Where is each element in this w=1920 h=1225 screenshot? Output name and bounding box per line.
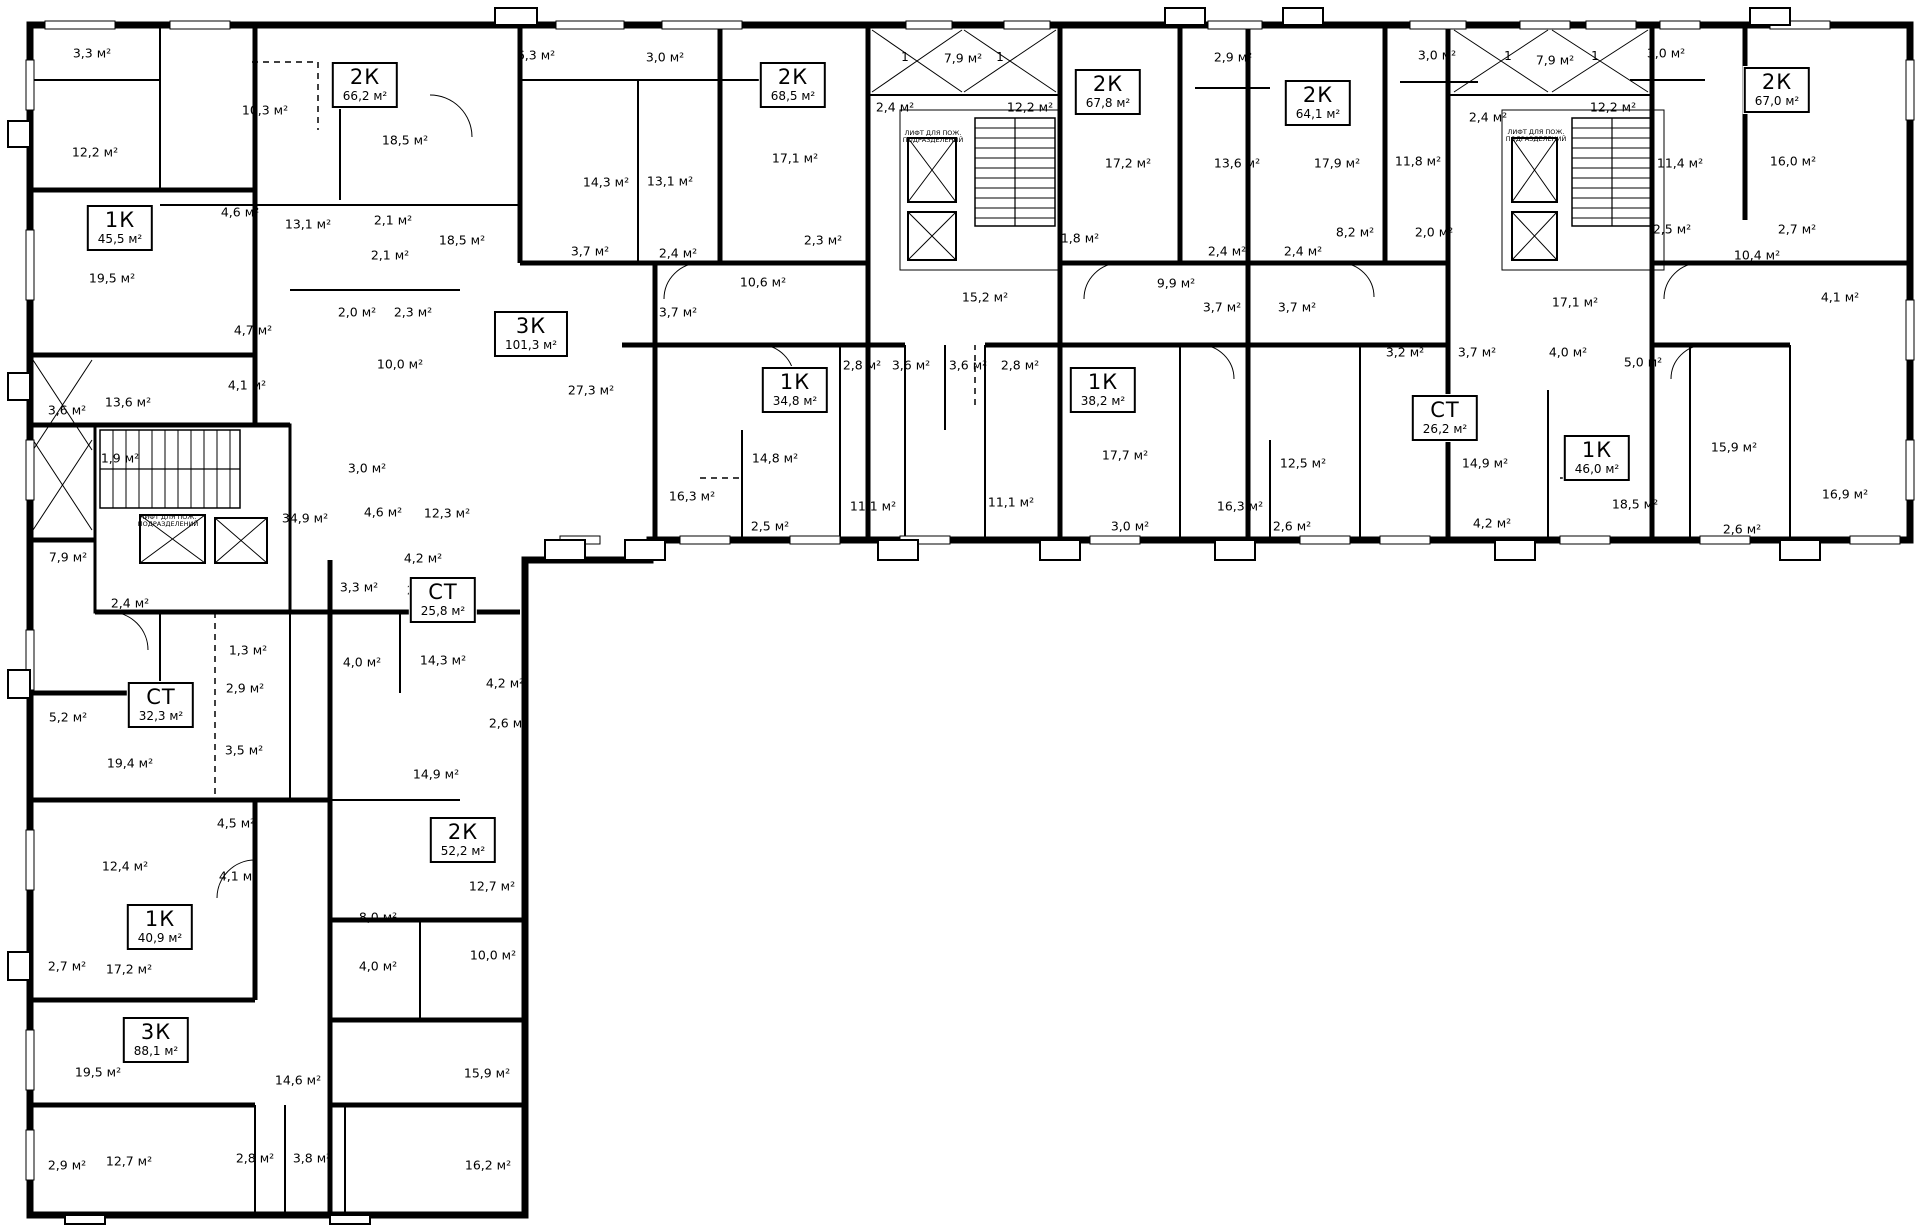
room-area-label: 14,8 м²: [752, 451, 798, 466]
room-area-label: 13,6 м²: [105, 395, 151, 410]
room-area-label: 2,4 м²: [111, 596, 149, 611]
room-area-label: 13,1 м²: [647, 174, 693, 189]
room-area-label: 4,6 м²: [364, 505, 402, 520]
room-area-label: 3,7 м²: [1458, 345, 1496, 360]
room-area-label: 10,6 м²: [740, 275, 786, 290]
room-area-label: 15,2 м²: [962, 290, 1008, 305]
apartment-type-badge: 2К66,2 м²: [332, 62, 398, 108]
apartment-type: 2К: [1086, 73, 1130, 96]
room-area-label: 4,0 м²: [1549, 345, 1587, 360]
room-area-label: 4,7 м²: [234, 323, 272, 338]
room-area-label: 16,3 м²: [1217, 499, 1263, 514]
room-area-label: 4,2 м²: [404, 551, 442, 566]
apartment-type: 2К: [343, 66, 387, 89]
room-area-label: 2,8 м²: [843, 358, 881, 373]
room-area-label: 4,0 м²: [343, 655, 381, 670]
room-area-label: 2,4 м²: [1284, 244, 1322, 259]
room-area-label: 2,4 м²: [659, 246, 697, 261]
room-area-label: 2,4 м²: [876, 100, 914, 115]
room-area-label: 27,3 м²: [568, 383, 614, 398]
apartment-type: СТ: [421, 581, 465, 604]
room-area-label: 10,0 м²: [377, 357, 423, 372]
room-area-label: 4,5 м²: [217, 816, 255, 831]
room-area-label: 11,8 м²: [1395, 154, 1441, 169]
room-area-label: 2,5 м²: [751, 519, 789, 534]
apartment-area: 66,2 м²: [343, 89, 387, 104]
room-area-label: 4,0 м²: [359, 959, 397, 974]
room-area-label: 19,5 м²: [75, 1065, 121, 1080]
room-area-label: 17,1 м²: [772, 151, 818, 166]
room-area-label: 14,3 м²: [420, 653, 466, 668]
apartment-area: 45,5 м²: [98, 232, 142, 247]
apartment-type: 1К: [1575, 439, 1619, 462]
apartment-type-badge: 1К34,8 м²: [762, 367, 828, 413]
room-area-label: 12,4 м²: [102, 859, 148, 874]
room-area-label: 2,7 м²: [1778, 222, 1816, 237]
apartment-area: 67,8 м²: [1086, 96, 1130, 111]
room-area-label: 12,7 м²: [106, 1154, 152, 1169]
apartment-type: 1К: [1081, 371, 1125, 394]
room-area-label: 12,7 м²: [469, 879, 515, 894]
apartment-area: 46,0 м²: [1575, 462, 1619, 477]
room-area-label: 3,0 м²: [646, 50, 684, 65]
room-area-label: 1,8 м²: [1061, 231, 1099, 246]
room-area-label: 3,0 м²: [1647, 46, 1685, 61]
room-area-label: 2,6 м²: [1723, 522, 1761, 537]
room-area-label: 2,6 м²: [489, 716, 527, 731]
room-area-label: 10,3 м²: [242, 103, 288, 118]
stair-flight-number: 1: [901, 50, 909, 64]
room-area-label: 4,1 м²: [219, 869, 257, 884]
room-area-label: 17,9 м²: [1314, 156, 1360, 171]
apartment-area: 68,5 м²: [771, 89, 815, 104]
room-area-label: 3,6 м²: [892, 358, 930, 373]
apartment-type-badge: 1К40,9 м²: [127, 904, 193, 950]
apartment-area: 101,3 м²: [505, 338, 557, 353]
apartment-type-badge: 1К46,0 м²: [1564, 435, 1630, 481]
room-area-label: 17,7 м²: [1102, 448, 1148, 463]
room-area-label: 2,3 м²: [804, 233, 842, 248]
apartment-type-badge: 2К68,5 м²: [760, 62, 826, 108]
room-area-label: 2,6 м²: [1273, 519, 1311, 534]
apartment-area: 26,2 м²: [1423, 422, 1467, 437]
apartment-type-badge: 1К38,2 м²: [1070, 367, 1136, 413]
apartment-type: 2К: [1755, 71, 1799, 94]
room-area-label: 14,9 м²: [1462, 456, 1508, 471]
room-area-label: 7,9 м²: [49, 550, 87, 565]
apartment-area: 64,1 м²: [1296, 107, 1340, 122]
apartment-area: 52,2 м²: [441, 844, 485, 859]
room-area-label: 14,6 м²: [275, 1073, 321, 1088]
room-area-label: 15,9 м²: [464, 1066, 510, 1081]
apartment-type-badge: 3К101,3 м²: [494, 311, 568, 357]
room-area-label: 16,9 м²: [1822, 487, 1868, 502]
room-area-label: 2,1 м²: [371, 248, 409, 263]
room-area-label: 2,8 м²: [236, 1151, 274, 1166]
room-area-label: 3,3 м²: [73, 46, 111, 61]
room-area-label: 17,1 м²: [1552, 295, 1598, 310]
room-area-label: 3,6 м²: [48, 403, 86, 418]
room-area-label: 16,3 м²: [669, 489, 715, 504]
apartment-type-badge: 2К64,1 м²: [1285, 80, 1351, 126]
room-area-label: 18,5 м²: [439, 233, 485, 248]
room-area-label: 3,7 м²: [1203, 300, 1241, 315]
apartment-type: 1К: [773, 371, 817, 394]
room-area-label: 2,1 м²: [374, 213, 412, 228]
room-area-label: 12,2 м²: [72, 145, 118, 160]
room-area-label: 4,2 м²: [1473, 516, 1511, 531]
stair-flight-number: 1: [996, 50, 1004, 64]
apartment-type-badge: 3К88,1 м²: [123, 1017, 189, 1063]
room-area-label: 14,9 м²: [413, 767, 459, 782]
room-area-label: 9,9 м²: [1157, 276, 1195, 291]
apartment-type: 2К: [1296, 84, 1340, 107]
room-area-label: 2,8 м²: [1001, 358, 1039, 373]
room-area-label: 3,5 м²: [225, 743, 263, 758]
room-area-label: 4,1 м²: [1821, 290, 1859, 305]
room-area-label: 14,3 м²: [583, 175, 629, 190]
room-area-label: 13,6 м²: [1214, 156, 1260, 171]
apartment-type: 3К: [505, 315, 557, 338]
room-area-label: 2,4 м²: [1208, 244, 1246, 259]
fire-elevator-label: ЛИФТ ДЛЯ ПОЖ. ПОДРАЗДЕЛЕНИЙ: [903, 130, 963, 144]
apartment-type: 3К: [134, 1021, 178, 1044]
room-area-label: 19,4 м²: [107, 756, 153, 771]
floor-plan-canvas: 3,3 м²10,3 м²12,2 м²18,5 м²4,6 м²13,1 м²…: [0, 0, 1920, 1225]
room-area-label: 3,7 м²: [571, 244, 609, 259]
room-area-label: 13,1 м²: [285, 217, 331, 232]
apartment-type-badge: 1К45,5 м²: [87, 205, 153, 251]
apartment-type-badge: СТ25,8 м²: [410, 577, 476, 623]
apartment-area: 34,8 м²: [773, 394, 817, 409]
room-area-label: 4,1 м²: [228, 378, 266, 393]
room-area-label: 3,2 м²: [1386, 345, 1424, 360]
room-area-label: 8,2 м²: [1336, 225, 1374, 240]
room-area-label: 2,9 м²: [1214, 50, 1252, 65]
room-area-label: 16,2 м²: [465, 1158, 511, 1173]
room-area-label: 3,7 м²: [1278, 300, 1316, 315]
apartment-area: 25,8 м²: [421, 604, 465, 619]
room-area-label: 2,7 м²: [48, 959, 86, 974]
room-area-label: 12,3 м²: [424, 506, 470, 521]
room-area-label: 17,2 м²: [1105, 156, 1151, 171]
fire-elevator-label: ЛИФТ ДЛЯ ПОЖ. ПОДРАЗДЕЛЕНИЙ: [1506, 129, 1566, 143]
room-area-label: 15,9 м²: [1711, 440, 1757, 455]
apartment-type-badge: 2К67,0 м²: [1744, 67, 1810, 113]
room-area-label: 19,5 м²: [89, 271, 135, 286]
room-area-label: 7,9 м²: [1536, 53, 1574, 68]
room-area-label: 3,0 м²: [1418, 48, 1456, 63]
room-area-label: 2,9 м²: [48, 1158, 86, 1173]
room-area-label: 5,0 м²: [1624, 355, 1662, 370]
room-area-label: 18,5 м²: [382, 133, 428, 148]
room-area-label: 3,8 м²: [293, 1151, 331, 1166]
room-area-label: 10,0 м²: [470, 948, 516, 963]
stair-flight-number: 1: [1591, 49, 1599, 63]
room-area-label: 3,7 м²: [659, 305, 697, 320]
room-area-label: 2,3 м²: [394, 305, 432, 320]
apartment-type: СТ: [139, 686, 183, 709]
room-area-label: 2,9 м²: [226, 681, 264, 696]
stair-flight-number: 1: [1504, 49, 1512, 63]
room-area-label: 2,0 м²: [338, 305, 376, 320]
fire-elevator-label: ЛИФТ ДЛЯ ПОЖ. ПОДРАЗДЕЛЕНИЙ: [138, 514, 198, 528]
room-area-label: 11,4 м²: [1657, 156, 1703, 171]
labels-layer: 3,3 м²10,3 м²12,2 м²18,5 м²4,6 м²13,1 м²…: [0, 0, 1920, 1225]
room-area-label: 18,5 м²: [1612, 497, 1658, 512]
room-area-label: 2,5 м²: [1653, 222, 1691, 237]
room-area-label: 2,4 м²: [1469, 110, 1507, 125]
room-area-label: 11,1 м²: [988, 495, 1034, 510]
apartment-area: 38,2 м²: [1081, 394, 1125, 409]
room-area-label: 10,4 м²: [1734, 248, 1780, 263]
room-area-label: 7,9 м²: [944, 51, 982, 66]
room-area-label: 16,0 м²: [1770, 154, 1816, 169]
apartment-type-badge: 2К52,2 м²: [430, 817, 496, 863]
apartment-type-badge: СТ26,2 м²: [1412, 395, 1478, 441]
room-area-label: 3,0 м²: [1111, 519, 1149, 534]
apartment-type-badge: 2К67,8 м²: [1075, 69, 1141, 115]
room-area-label: 34,9 м²: [282, 511, 328, 526]
apartment-area: 88,1 м²: [134, 1044, 178, 1059]
apartment-type-badge: СТ32,3 м²: [128, 682, 194, 728]
room-area-label: 12,2 м²: [1007, 100, 1053, 115]
room-area-label: 12,2 м²: [1590, 100, 1636, 115]
room-area-label: 1,9 м²: [101, 451, 139, 466]
room-area-label: 17,2 м²: [106, 962, 152, 977]
room-area-label: 5,2 м²: [49, 710, 87, 725]
apartment-area: 67,0 м²: [1755, 94, 1799, 109]
room-area-label: 3,6 м²: [949, 358, 987, 373]
room-area-label: 11,1 м²: [850, 499, 896, 514]
room-area-label: 4,2 м²: [486, 676, 524, 691]
room-area-label: 6,3 м²: [517, 48, 555, 63]
room-area-label: 2,0 м²: [1415, 225, 1453, 240]
room-area-label: 8,0 м²: [359, 910, 397, 925]
room-area-label: 3,3 м²: [340, 580, 378, 595]
room-area-label: 4,6 м²: [221, 205, 259, 220]
apartment-type: 2К: [771, 66, 815, 89]
room-area-label: 12,5 м²: [1280, 456, 1326, 471]
apartment-area: 32,3 м²: [139, 709, 183, 724]
room-area-label: 1,3 м²: [229, 643, 267, 658]
room-area-label: 3,0 м²: [348, 461, 386, 476]
apartment-area: 40,9 м²: [138, 931, 182, 946]
apartment-type: СТ: [1423, 399, 1467, 422]
apartment-type: 2К: [441, 821, 485, 844]
apartment-type: 1К: [138, 908, 182, 931]
apartment-type: 1К: [98, 209, 142, 232]
